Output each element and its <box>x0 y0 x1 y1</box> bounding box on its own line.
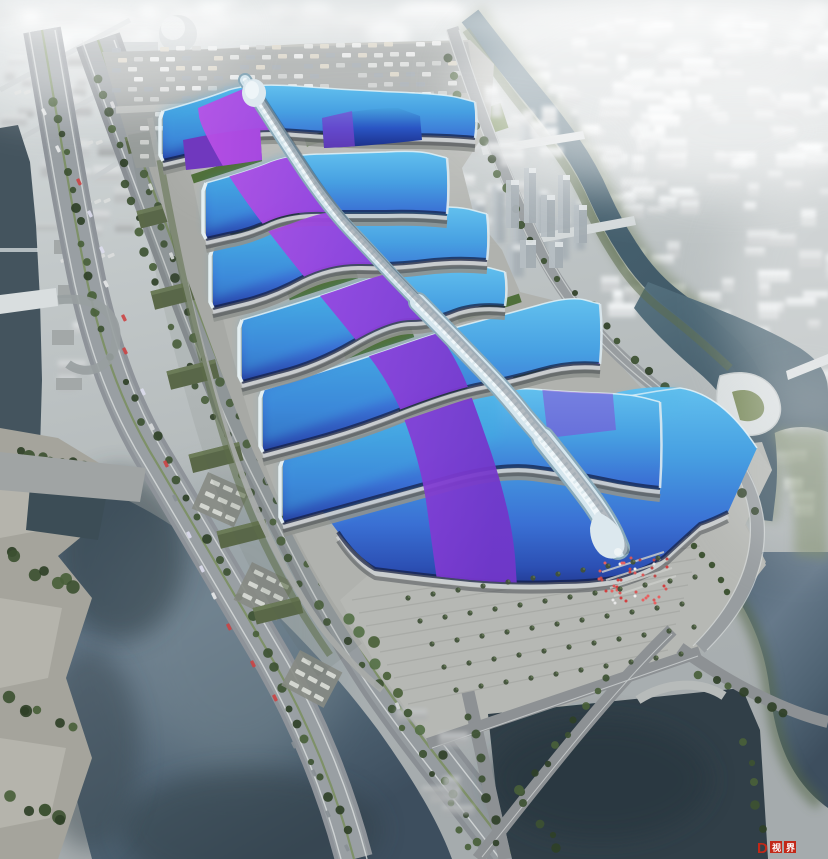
svg-text:D: D <box>757 840 768 857</box>
svg-text:界: 界 <box>786 843 795 853</box>
svg-text:视: 视 <box>772 842 781 853</box>
